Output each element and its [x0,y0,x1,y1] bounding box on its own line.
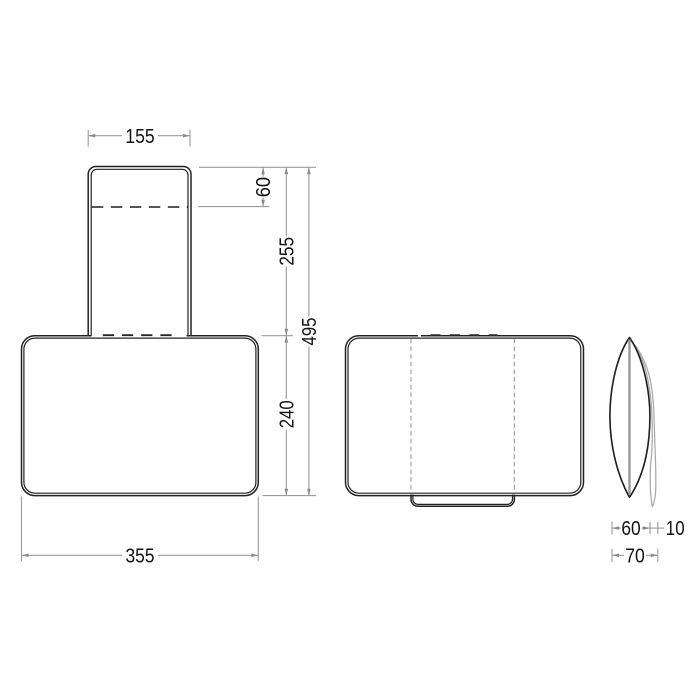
svg-text:10: 10 [666,518,685,540]
svg-text:495: 495 [299,318,321,346]
svg-text:255: 255 [276,237,298,266]
svg-text:155: 155 [125,126,155,148]
svg-text:355: 355 [126,545,155,567]
svg-text:70: 70 [625,545,645,567]
svg-text:60: 60 [253,177,275,197]
svg-text:240: 240 [276,400,298,428]
svg-text:60: 60 [621,518,640,540]
